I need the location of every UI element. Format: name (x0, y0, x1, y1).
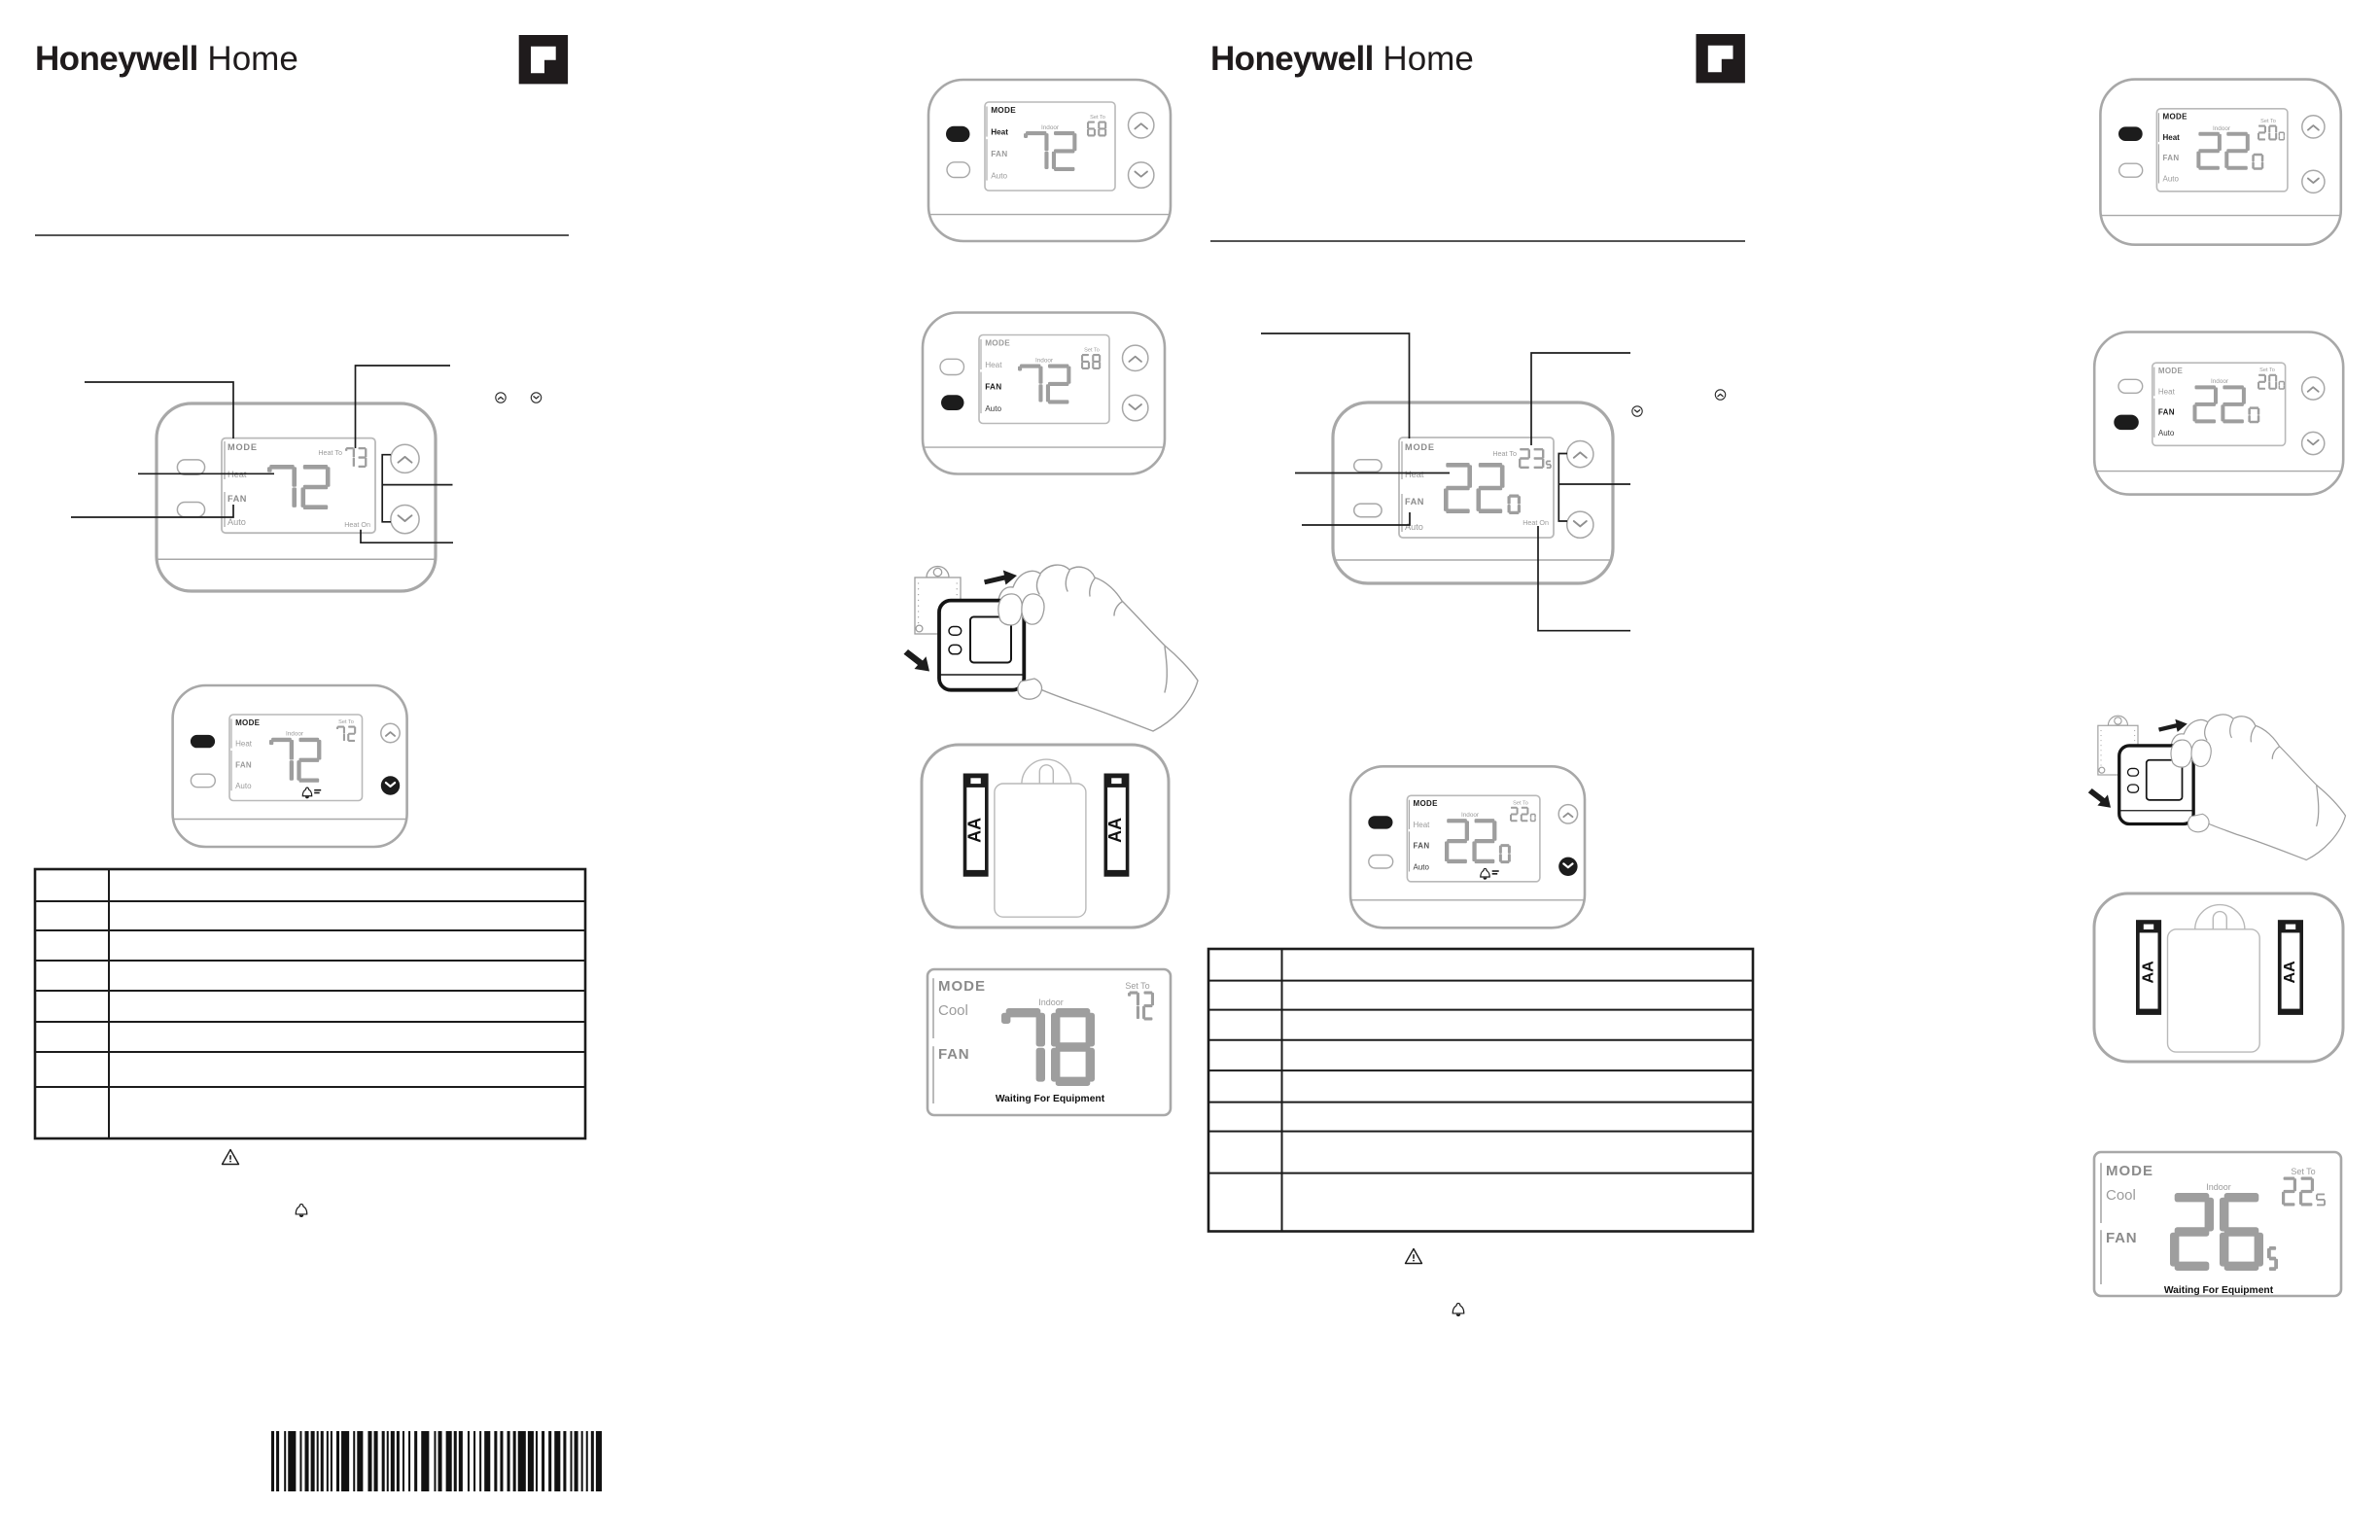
svg-text:Heat On: Heat On (1522, 518, 1549, 527)
svg-text:Auto: Auto (235, 782, 252, 790)
svg-text:Auto: Auto (227, 517, 246, 527)
svg-text:Heat: Heat (1405, 470, 1424, 479)
svg-text:Auto: Auto (1414, 863, 1430, 872)
svg-text:Heat: Heat (1414, 821, 1431, 829)
svg-text:Indoor: Indoor (1035, 358, 1054, 365)
svg-text:MODE: MODE (2158, 367, 2184, 375)
svg-text:Indoor: Indoor (2213, 125, 2231, 132)
svg-text:Waiting For Equipment: Waiting For Equipment (996, 1094, 1105, 1104)
svg-text:Indoor: Indoor (1461, 812, 1480, 819)
svg-text:Heat: Heat (2163, 133, 2181, 142)
svg-text:Set To: Set To (1125, 981, 1149, 991)
svg-text:MODE: MODE (1414, 799, 1439, 808)
svg-text:Indoor: Indoor (2206, 1182, 2231, 1192)
svg-text:AA: AA (1105, 818, 1125, 843)
svg-text:Auto: Auto (2163, 175, 2180, 184)
svg-text:Set To: Set To (1513, 800, 1528, 806)
svg-text:MODE: MODE (1405, 442, 1435, 452)
svg-text:Auto: Auto (1405, 522, 1423, 532)
svg-text:MODE: MODE (2106, 1163, 2153, 1179)
svg-text:Set To: Set To (1084, 348, 1100, 354)
svg-text:Indoor: Indoor (1038, 997, 1064, 1007)
svg-text:Set To: Set To (338, 719, 354, 725)
svg-text:MODE: MODE (2163, 113, 2188, 122)
svg-text:Heat To: Heat To (1492, 449, 1517, 458)
svg-text:Indoor: Indoor (286, 731, 304, 738)
svg-text:FAN: FAN (991, 150, 1007, 158)
svg-text:FAN: FAN (235, 760, 252, 769)
svg-text:Honeywell Home: Honeywell Home (35, 40, 298, 78)
svg-text:FAN: FAN (938, 1046, 969, 1063)
svg-text:Honeywell Home: Honeywell Home (1210, 40, 1474, 78)
svg-text:Heat On: Heat On (344, 520, 370, 529)
svg-text:MODE: MODE (227, 442, 258, 452)
svg-text:AA: AA (2282, 961, 2298, 984)
svg-text:Auto: Auto (985, 404, 1001, 413)
svg-text:Heat: Heat (985, 361, 1002, 369)
svg-text:Heat: Heat (235, 740, 253, 749)
svg-text:Auto: Auto (2158, 429, 2175, 437)
svg-text:MODE: MODE (985, 339, 1010, 348)
svg-text:AA: AA (2140, 961, 2156, 984)
svg-text:FAN: FAN (2106, 1230, 2137, 1246)
svg-text:Set To: Set To (1090, 115, 1105, 121)
svg-text:FAN: FAN (2158, 408, 2175, 417)
svg-text:Cool: Cool (2106, 1187, 2136, 1204)
svg-text:Waiting For Equipment: Waiting For Equipment (2164, 1285, 2274, 1296)
svg-text:FAN: FAN (1405, 497, 1424, 507)
svg-text:MODE: MODE (991, 106, 1016, 115)
svg-text:Indoor: Indoor (2211, 378, 2229, 385)
svg-text:Heat: Heat (2158, 387, 2176, 396)
svg-text:MODE: MODE (938, 978, 986, 995)
svg-text:FAN: FAN (1414, 842, 1430, 851)
svg-text:Cool: Cool (938, 1002, 968, 1019)
svg-text:AA: AA (964, 818, 984, 843)
svg-text:FAN: FAN (227, 494, 247, 504)
svg-text:Set To: Set To (2291, 1167, 2315, 1176)
svg-text:Set To: Set To (2260, 119, 2276, 124)
svg-text:FAN: FAN (2163, 154, 2180, 162)
svg-text:Heat: Heat (991, 128, 1008, 137)
svg-text:MODE: MODE (235, 718, 261, 727)
svg-text:Indoor: Indoor (1041, 124, 1060, 131)
svg-text:Heat To: Heat To (318, 448, 342, 457)
svg-text:Auto: Auto (991, 172, 1007, 181)
svg-text:FAN: FAN (985, 383, 1001, 392)
svg-text:Set To: Set To (2259, 367, 2275, 373)
